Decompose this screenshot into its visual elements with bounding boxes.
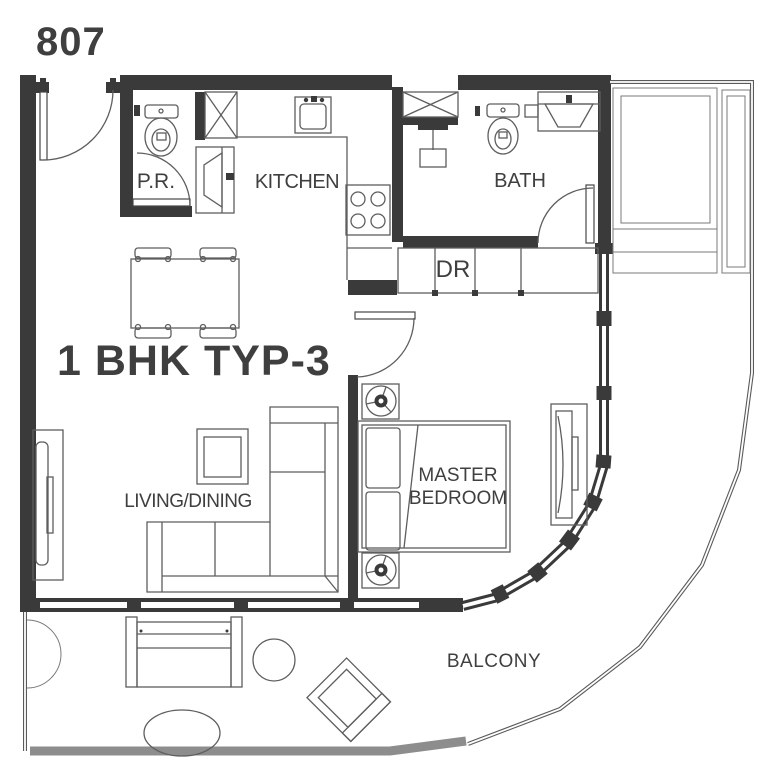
plan-type-title: 1 BHK TYP-3 — [57, 337, 331, 386]
wardrobe-icon — [551, 404, 587, 525]
room-label-dresser: DR — [432, 256, 474, 284]
adjacent-ledge — [613, 88, 750, 273]
master-bedroom-line2: BEDROOM — [400, 487, 516, 510]
balcony-chair-icon — [307, 658, 390, 741]
shower-icon — [418, 121, 448, 167]
room-label-powder-room: P.R. — [128, 170, 184, 194]
nightstand-lamp-icon — [362, 553, 399, 588]
floor-plan-drawing — [0, 0, 773, 776]
bath-door-icon — [538, 185, 594, 243]
pr-sink-icon — [196, 147, 234, 213]
room-label-balcony: BALCONY — [438, 651, 550, 673]
master-bedroom-line1: MASTER — [400, 464, 516, 487]
coffee-table-icon — [197, 429, 248, 484]
room-label-living-dining: LIVING/DINING — [120, 491, 256, 513]
nightstand-lamp-icon — [362, 384, 399, 419]
dresser-closet — [398, 248, 598, 296]
kitchen-sink-icon — [295, 96, 331, 133]
south-window-wall — [40, 598, 432, 612]
dining-table-icon — [131, 248, 239, 338]
balcony-door-arc — [27, 620, 61, 688]
unit-number: 807 — [36, 20, 106, 65]
kitchen-counter — [237, 137, 392, 280]
room-label-bath: BATH — [488, 170, 552, 193]
bath-toilet-icon — [475, 104, 538, 154]
bath-sink-icon — [538, 92, 600, 131]
floor-plan: 807 1 BHK TYP-3 P.R. KITCHEN BATH DR LIV… — [0, 0, 773, 776]
room-label-master-bedroom: MASTER BEDROOM — [400, 464, 516, 510]
bedroom-door-icon — [355, 312, 415, 377]
stove-icon — [346, 185, 390, 235]
pr-toilet-icon — [134, 105, 178, 156]
tv-unit-icon — [33, 430, 63, 580]
balcony-table-icon — [253, 639, 295, 681]
room-label-kitchen: KITCHEN — [248, 171, 346, 194]
entry-door-icon — [36, 78, 120, 160]
balcony-bench-icon — [126, 617, 242, 687]
